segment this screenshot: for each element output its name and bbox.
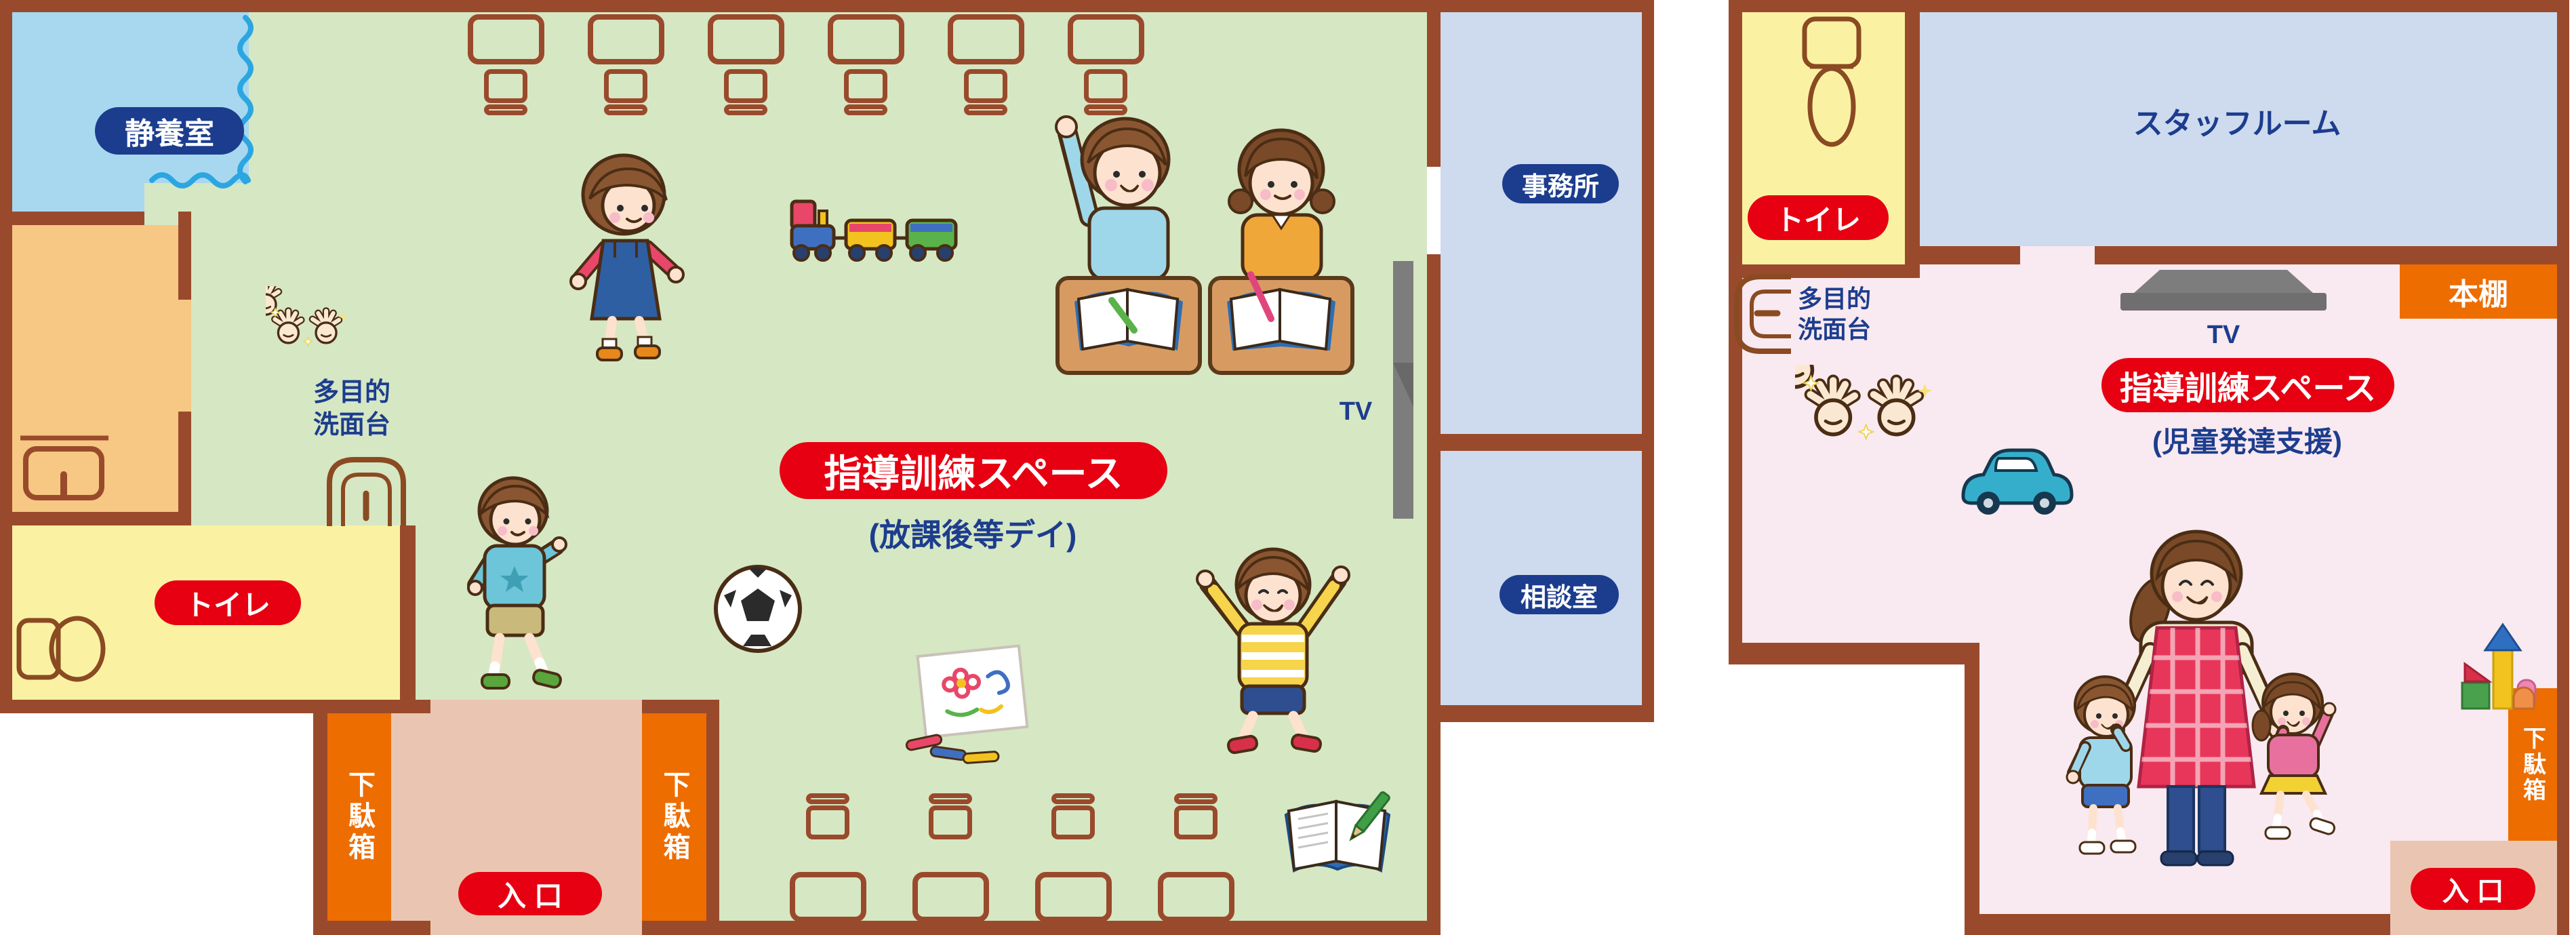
sink-icon <box>1730 270 1794 358</box>
training-space-subtitle-right: (児童発達支援) <box>2085 422 2410 457</box>
sparkle-hands-icon <box>1795 365 1941 441</box>
consult-room-label: 相談室 <box>1500 575 1619 614</box>
sink-label-left: 多目的 洗面台 <box>313 377 428 441</box>
chair-icon <box>929 793 972 804</box>
office-label: 事務所 <box>1502 164 1619 203</box>
toilet-icon <box>1796 15 1868 151</box>
sink-label-right: 多目的 洗面台 <box>1798 283 1913 344</box>
wall <box>1427 12 1441 167</box>
tv-icon <box>1386 261 1420 525</box>
consult-room-label-text: 相談室 <box>1521 576 1598 614</box>
wall <box>642 700 719 713</box>
wall <box>178 412 191 512</box>
wall <box>719 921 1441 935</box>
chair-icon <box>1174 793 1217 804</box>
tv-label-text: TV <box>2207 321 2240 350</box>
office-label-text: 事務所 <box>1522 165 1599 203</box>
boy-walking-illustration <box>458 471 569 709</box>
chair-icon <box>806 805 849 839</box>
wall <box>1441 434 1642 451</box>
desk-icon <box>828 14 904 64</box>
entrance-label-left: 入 口 <box>458 872 602 915</box>
wall <box>313 713 327 935</box>
chair-icon <box>1174 805 1217 839</box>
wall <box>1427 705 1654 722</box>
staff-room-label: スタッフルーム <box>2034 100 2440 141</box>
toilet-label-left: トイレ <box>155 580 301 625</box>
desk-icon <box>948 14 1024 64</box>
curtain-wave-icon <box>149 167 251 194</box>
wall <box>706 713 719 935</box>
outside-area <box>0 713 313 935</box>
wall <box>1729 643 1979 664</box>
wall <box>2095 246 2557 264</box>
girl-walking-illustration <box>552 146 698 380</box>
wall <box>178 212 191 300</box>
sparkle-hands-icon <box>266 286 353 362</box>
chair-icon <box>844 104 887 115</box>
desk-icon <box>1158 872 1234 922</box>
shoebox-label-left: 下駄箱 <box>327 713 391 921</box>
tv-label-text: TV <box>1340 397 1373 426</box>
shoebox-label-text: 下駄箱 <box>340 770 379 864</box>
sink-icon <box>324 453 409 529</box>
desk-icon <box>1035 872 1112 922</box>
office-room-floor <box>1441 12 1642 434</box>
training-space-title-text: 指導訓練スペース <box>824 443 1123 498</box>
chair-icon <box>1051 793 1095 804</box>
wall <box>1965 643 1979 935</box>
chair-icon <box>484 104 527 115</box>
tv-label-right: TV <box>2196 320 2251 350</box>
sink-counter-icon <box>20 433 108 507</box>
toy-train-illustration <box>786 193 973 264</box>
desk-icon <box>588 14 664 64</box>
chair-icon <box>604 69 647 103</box>
training-space-label-left: 指導訓練スペース <box>780 442 1167 499</box>
notebook-icon <box>1278 780 1396 888</box>
boy-jumping-illustration <box>1186 522 1359 773</box>
chair-icon <box>1051 805 1095 839</box>
desk-icon <box>708 14 784 64</box>
bookshelf-label: 本棚 <box>2400 264 2557 319</box>
training-space-subtitle-left: (放課後等デイ) <box>803 514 1142 552</box>
wall <box>1920 246 2020 264</box>
teacher-children-illustration <box>2047 502 2346 909</box>
tv-icon <box>2115 266 2332 315</box>
wall <box>0 0 1654 12</box>
shoebox-label-right: 下駄箱 <box>642 713 706 921</box>
wall <box>0 700 430 713</box>
training-space-title-text: 指導訓練スペース <box>2120 361 2376 409</box>
kids-at-desks-illustration <box>1047 51 1363 386</box>
shoebox-label-text: 下駄箱 <box>655 770 694 864</box>
chair-icon <box>806 793 849 804</box>
wall <box>12 212 144 225</box>
wall <box>1729 0 2569 12</box>
chair-icon <box>964 104 1007 115</box>
sink-label-line2: 洗面台 <box>313 410 428 442</box>
wall <box>0 12 12 713</box>
floor-plan-canvas: 静養室 トイレ 多目的 洗面台 指導訓練スペース (放課後等デイ) TV 事務所… <box>0 0 2576 935</box>
toilet-label-right: トイレ <box>1748 195 1889 240</box>
desk-icon <box>790 872 866 922</box>
sink-label-line1: 多目的 <box>313 377 428 410</box>
outside-area <box>1729 664 1965 935</box>
entrance-label-text: 入 口 <box>498 873 563 915</box>
wall <box>1642 12 1654 722</box>
shoebox-label-text: 下駄箱 <box>2516 726 2550 803</box>
toilet-icon <box>15 614 106 685</box>
chair-icon <box>604 104 647 115</box>
wall <box>642 921 719 935</box>
chair-icon <box>964 69 1007 103</box>
soccer-ball-icon <box>710 561 805 656</box>
desk-icon <box>468 14 544 64</box>
desk-icon <box>912 872 989 922</box>
shoebox-label: 下駄箱 <box>2508 688 2557 841</box>
chair-icon <box>724 104 767 115</box>
wall <box>2557 12 2569 935</box>
storage-room-floor <box>178 300 191 412</box>
training-space-subtitle-text: (児童発達支援) <box>2152 419 2342 460</box>
staff-room-label-text: スタッフルーム <box>2133 99 2341 142</box>
sink-label-line1: 多目的 <box>1798 283 1913 314</box>
wall <box>12 512 191 525</box>
toilet-label-text: トイレ <box>1775 197 1861 239</box>
wall <box>1427 254 1441 935</box>
wall <box>1905 12 1920 278</box>
tv-label-left: TV <box>1329 397 1383 426</box>
toilet-label-text: トイレ <box>185 582 270 624</box>
drawing-illustration <box>898 637 1051 766</box>
training-space-label-right: 指導訓練スペース <box>2101 358 2394 412</box>
rest-room-label-text: 静養室 <box>125 109 214 153</box>
entrance-label-right: 入 口 <box>2411 868 2535 910</box>
wall <box>400 525 416 713</box>
chair-icon <box>844 69 887 103</box>
wall <box>313 921 430 935</box>
bookshelf-label-text: 本棚 <box>2449 270 2508 313</box>
sink-label-line2: 洗面台 <box>1798 314 1913 344</box>
rest-room-label: 静養室 <box>95 107 244 155</box>
chair-icon <box>929 805 972 839</box>
chair-icon <box>724 69 767 103</box>
curtain-wave-icon <box>232 15 259 184</box>
chair-icon <box>484 69 527 103</box>
training-space-subtitle-text: (放課後等デイ) <box>869 511 1077 555</box>
wall <box>1965 914 2390 935</box>
entrance-label-text: 入 口 <box>2442 869 2503 909</box>
